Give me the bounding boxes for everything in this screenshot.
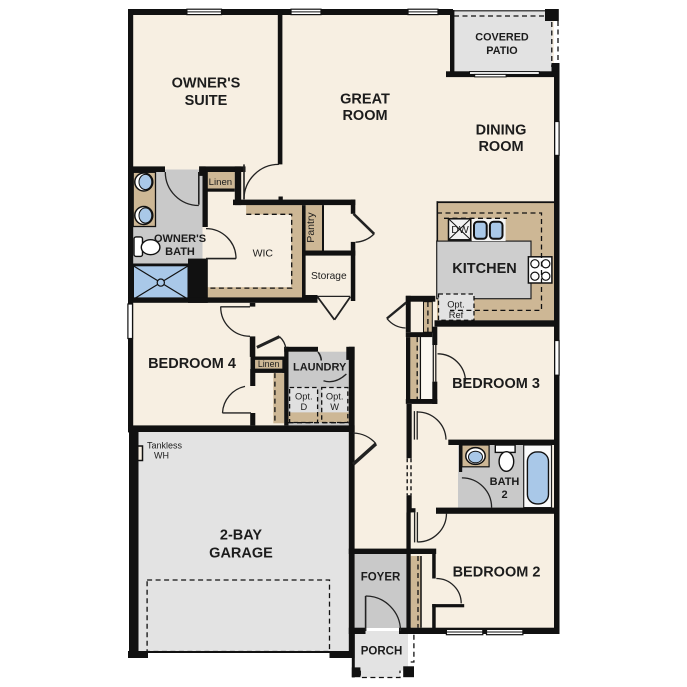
svg-text:COVERED: COVERED <box>475 32 529 44</box>
svg-text:Opt.: Opt. <box>326 392 344 402</box>
svg-text:Pantry: Pantry <box>305 212 317 243</box>
svg-text:BATH: BATH <box>490 476 520 488</box>
svg-text:DINING: DINING <box>476 123 527 139</box>
svg-text:2: 2 <box>501 489 507 501</box>
svg-text:WH: WH <box>154 450 169 460</box>
svg-text:Opt.: Opt. <box>447 300 465 310</box>
svg-text:W: W <box>330 402 339 412</box>
svg-text:PATIO: PATIO <box>486 45 517 57</box>
svg-text:DW: DW <box>451 224 469 236</box>
svg-text:OWNER'S: OWNER'S <box>154 233 206 245</box>
svg-text:2-BAY: 2-BAY <box>220 528 263 544</box>
svg-text:Linen: Linen <box>209 177 232 188</box>
svg-text:Ref: Ref <box>449 310 464 320</box>
svg-text:PORCH: PORCH <box>361 646 403 658</box>
svg-text:Storage: Storage <box>311 271 347 282</box>
svg-text:Linen: Linen <box>258 359 280 369</box>
svg-text:GREAT: GREAT <box>340 91 390 107</box>
svg-text:BEDROOM 2: BEDROOM 2 <box>453 565 541 581</box>
svg-text:GARAGE: GARAGE <box>209 546 273 562</box>
svg-text:ROOM: ROOM <box>478 139 523 155</box>
svg-text:D: D <box>300 402 307 412</box>
svg-text:FOYER: FOYER <box>361 572 401 584</box>
svg-text:Opt.: Opt. <box>295 392 313 402</box>
svg-text:BEDROOM 4: BEDROOM 4 <box>148 356 236 372</box>
svg-text:SUITE: SUITE <box>185 93 228 109</box>
svg-text:KITCHEN: KITCHEN <box>452 261 516 277</box>
svg-text:BATH: BATH <box>165 246 195 258</box>
svg-text:Tankless: Tankless <box>147 440 183 450</box>
svg-text:WIC: WIC <box>253 248 274 260</box>
svg-text:ROOM: ROOM <box>342 108 387 124</box>
svg-text:LAUNDRY: LAUNDRY <box>293 361 347 373</box>
svg-text:OWNER'S: OWNER'S <box>172 75 241 91</box>
svg-text:BEDROOM 3: BEDROOM 3 <box>452 376 540 392</box>
